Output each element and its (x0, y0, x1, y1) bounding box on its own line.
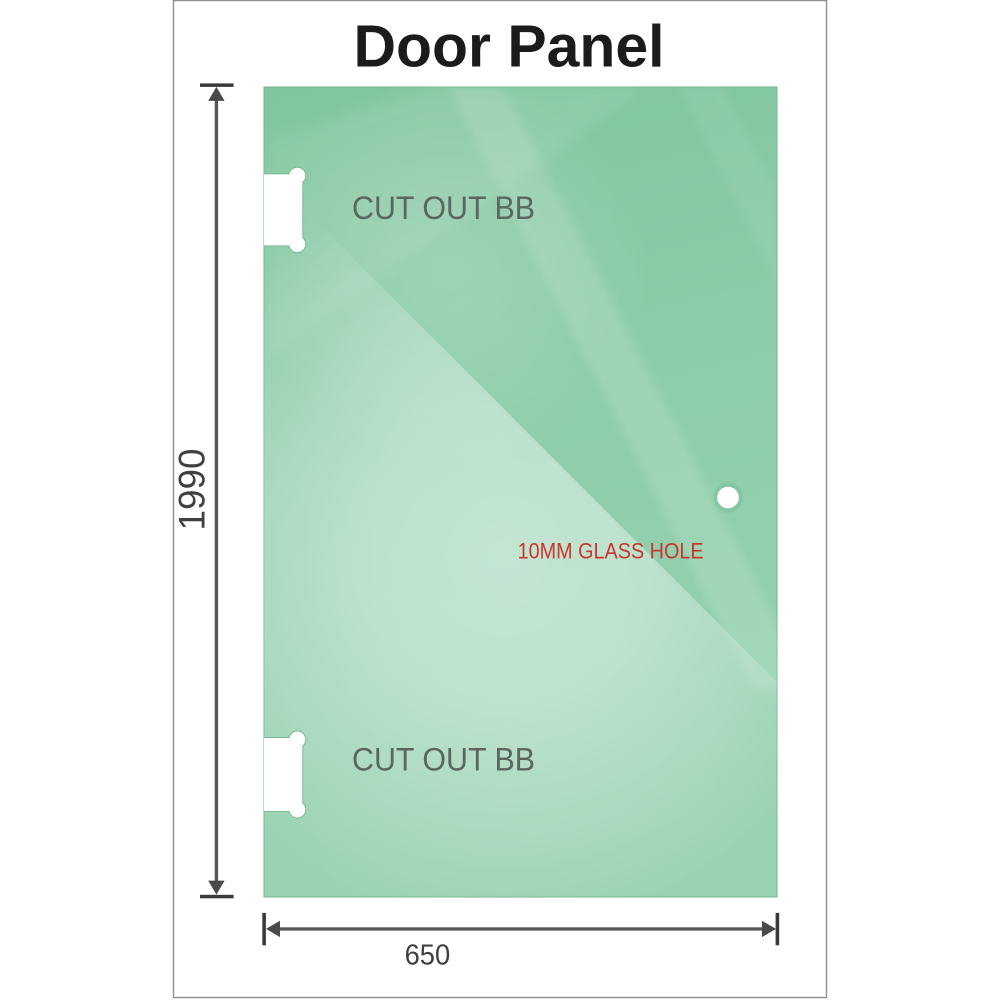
svg-text:650: 650 (405, 940, 451, 972)
svg-text:1990: 1990 (172, 449, 213, 531)
svg-text:CUT OUT BB: CUT OUT BB (352, 190, 535, 226)
svg-text:10MM GLASS HOLE: 10MM GLASS HOLE (518, 539, 704, 564)
svg-text:Door Panel: Door Panel (354, 14, 665, 80)
svg-text:CUT OUT BB: CUT OUT BB (352, 742, 535, 778)
